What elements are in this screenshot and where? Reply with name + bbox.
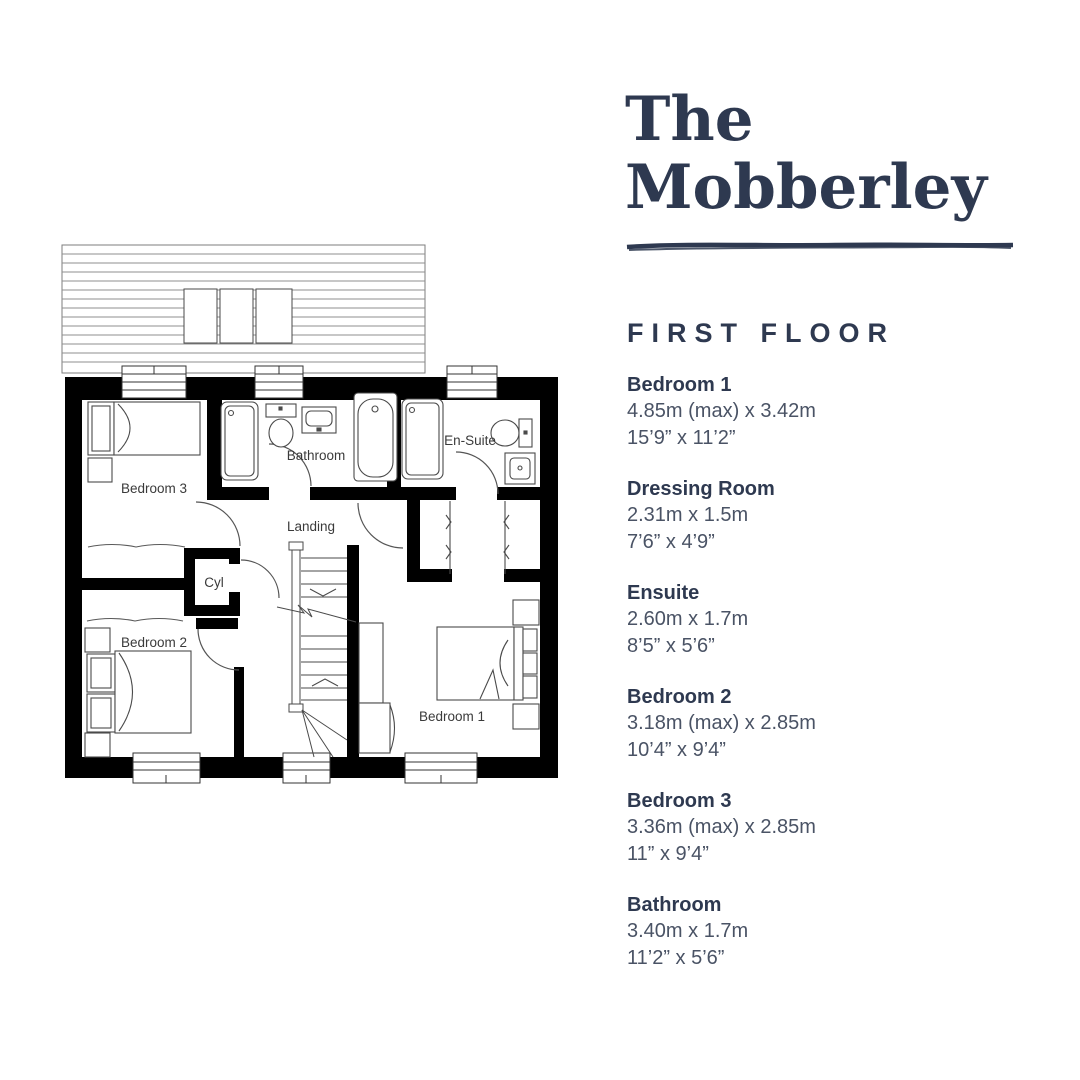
plan-label-ensuite: En-Suite <box>444 433 496 448</box>
door-bedroom3 <box>196 502 240 546</box>
toilet-icon <box>491 419 532 447</box>
bathroom-fixtures <box>221 393 397 481</box>
window-ensuite <box>447 366 497 398</box>
room-metric-dims: 3.40m x 1.7m <box>627 918 1025 945</box>
floor-label: FIRST FLOOR <box>627 318 895 349</box>
room-name: Dressing Room <box>627 476 1025 502</box>
room-metric-dims: 4.85m (max) x 3.42m <box>627 398 1025 425</box>
down-arrow-icon <box>310 589 336 596</box>
bedside-cabinet-icon <box>88 458 112 482</box>
single-bed-icon <box>88 402 200 455</box>
cupboard-icon <box>359 703 395 753</box>
bedroom3-furniture <box>88 402 200 547</box>
room-imperial-dims: 11’2” x 5’6” <box>627 945 1025 972</box>
bathtub-icon <box>354 393 397 481</box>
up-arrow-icon <box>312 679 338 686</box>
room-metric-dims: 2.31m x 1.5m <box>627 502 1025 529</box>
bedroom1-furniture <box>359 600 539 753</box>
room-entry-bedroom1: Bedroom 1 4.85m (max) x 3.42m 15’9” x 11… <box>627 372 1025 452</box>
room-imperial-dims: 7’6” x 4’9” <box>627 529 1025 556</box>
plan-label-bathroom: Bathroom <box>287 448 346 463</box>
brochure-page: Bedroom 3 Bathroom En-Suite Landing Cyl … <box>0 0 1080 1080</box>
room-metric-dims: 2.60m x 1.7m <box>627 606 1025 633</box>
door-ensuite <box>456 452 498 494</box>
toilet-icon <box>266 404 296 447</box>
stairs <box>277 542 356 757</box>
room-imperial-dims: 15’9” x 11’2” <box>627 425 1025 452</box>
title-line-2: Mobberley <box>625 154 987 222</box>
title-underline <box>625 238 1017 256</box>
room-metric-dims: 3.36m (max) x 2.85m <box>627 814 1025 841</box>
window-bathroom <box>255 366 303 398</box>
door-bedroom1 <box>358 503 403 548</box>
basin-icon <box>302 407 336 433</box>
room-entry-ensuite: Ensuite 2.60m x 1.7m 8’5” x 5’6” <box>627 580 1025 660</box>
double-bed-icon <box>87 651 191 733</box>
bedside-cabinet-icon <box>85 628 110 652</box>
bedside-cabinet-icon <box>513 600 539 625</box>
window-bedroom1 <box>405 753 477 783</box>
room-metric-dims: 3.18m (max) x 2.85m <box>627 710 1025 737</box>
window-bedroom3 <box>122 366 186 398</box>
bedside-cabinet-icon <box>513 704 539 729</box>
room-name: Ensuite <box>627 580 1025 606</box>
room-name: Bathroom <box>627 892 1025 918</box>
door-bedroom2 <box>198 629 239 670</box>
plan-label-bedroom1: Bedroom 1 <box>419 709 485 724</box>
wardrobe-front <box>88 545 185 548</box>
room-name: Bedroom 3 <box>627 788 1025 814</box>
room-imperial-dims: 10’4” x 9’4” <box>627 737 1025 764</box>
stair-break-line <box>277 605 356 622</box>
door-cyl <box>241 560 279 598</box>
room-dimension-list: Bedroom 1 4.85m (max) x 3.42m 15’9” x 11… <box>627 372 1025 996</box>
dressing-room-wardrobes <box>446 501 509 574</box>
shower-icon <box>221 402 258 480</box>
room-entry-bedroom3: Bedroom 3 3.36m (max) x 2.85m 11” x 9’4” <box>627 788 1025 868</box>
room-entry-bedroom2: Bedroom 2 3.18m (max) x 2.85m 10’4” x 9’… <box>627 684 1025 764</box>
window-stairs <box>283 753 330 783</box>
room-name: Bedroom 1 <box>627 372 1025 398</box>
winder-steps <box>302 710 347 757</box>
plan-label-bedroom2: Bedroom 2 <box>121 635 187 650</box>
bedside-cabinet-icon <box>85 733 110 757</box>
plan-label-cyl: Cyl <box>204 575 224 590</box>
room-imperial-dims: 11” x 9’4” <box>627 841 1025 868</box>
wardrobe-front <box>87 619 183 622</box>
basin-icon <box>505 453 535 484</box>
room-name: Bedroom 2 <box>627 684 1025 710</box>
room-entry-bathroom: Bathroom 3.40m x 1.7m 11’2” x 5’6” <box>627 892 1025 972</box>
double-bed-icon <box>437 627 537 700</box>
window-bedroom2 <box>133 753 200 783</box>
plan-label-landing: Landing <box>287 519 335 534</box>
plan-label-bedroom3: Bedroom 3 <box>121 481 187 496</box>
tall-unit-icon <box>359 623 383 703</box>
dormer-windows <box>184 289 292 343</box>
room-imperial-dims: 8’5” x 5’6” <box>627 633 1025 660</box>
shower-icon <box>402 399 443 479</box>
room-entry-dressing-room: Dressing Room 2.31m x 1.5m 7’6” x 4’9” <box>627 476 1025 556</box>
page-title: The Mobberley <box>625 86 987 222</box>
title-line-1: The <box>625 86 987 154</box>
